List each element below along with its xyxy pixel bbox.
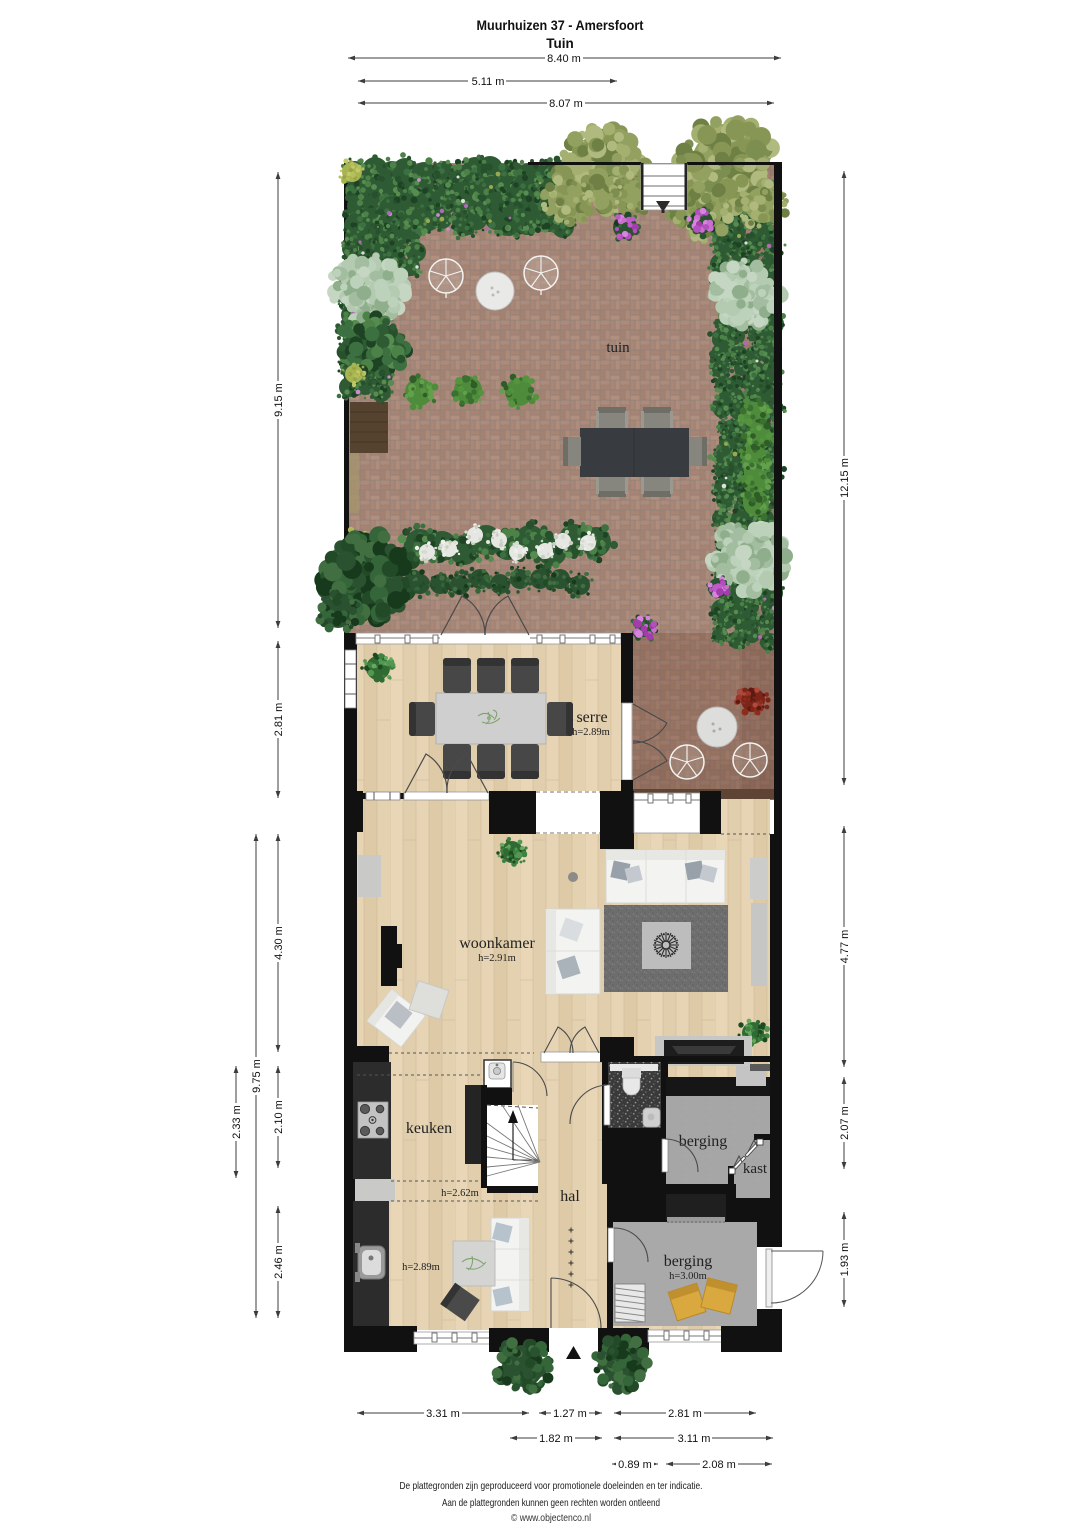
svg-text:Muurhuizen 37 - Amersfoort: Muurhuizen 37 - Amersfoort [477,18,644,33]
svg-text:Tuin: Tuin [546,36,574,51]
